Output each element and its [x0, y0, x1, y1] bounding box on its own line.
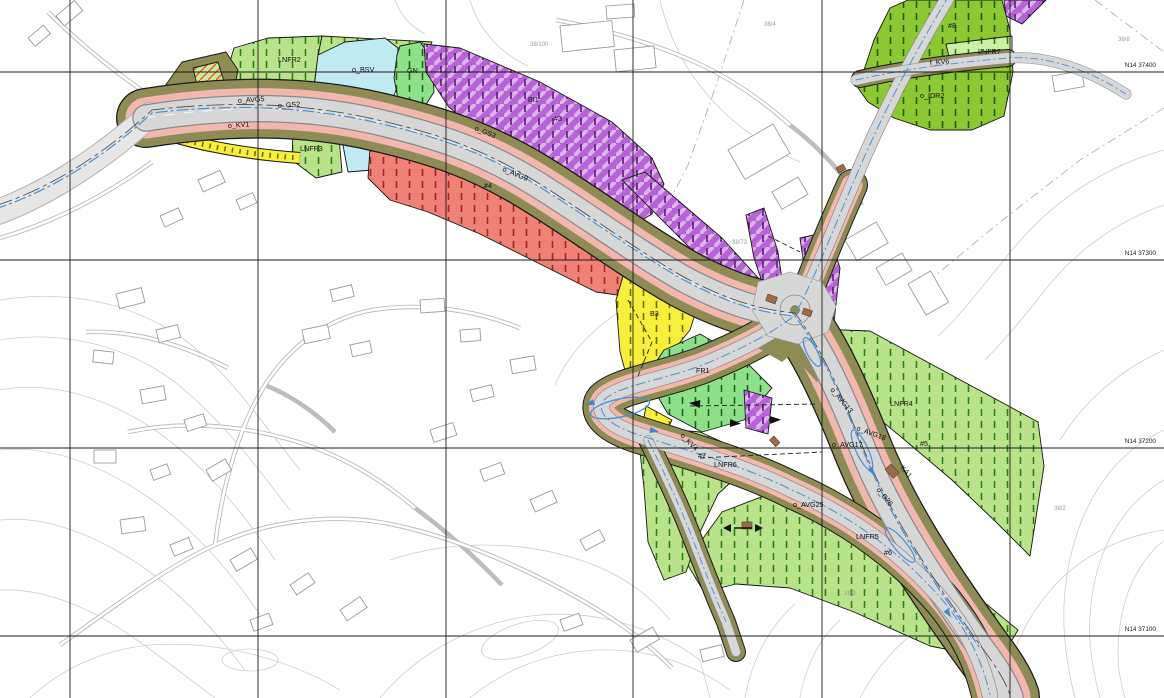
label-hash5: #5	[920, 439, 928, 448]
label-lnfr2: LNFR2	[278, 55, 301, 64]
label-p38-2: 38/2	[1054, 506, 1066, 512]
label-f-kv6: f_KV6	[930, 57, 950, 67]
label-p38-73: 38/73	[732, 240, 748, 246]
label-n14-37400: N14 37400	[1125, 62, 1157, 69]
label-lnfr3: LNFR3	[300, 144, 323, 153]
label-fr1: FR1	[696, 366, 710, 375]
label-hash4: #4	[484, 181, 492, 190]
label-hash6: #6	[884, 548, 892, 557]
label-lnfr4: LNFR4	[890, 399, 913, 408]
label-n14-37300: N14 37300	[1125, 250, 1157, 257]
label-lnfr7: LNFR7	[978, 47, 1001, 56]
zoning-map-canvas[interactable]: o_BSVLNFR2GNBI1#3o_GS3o_KV1o_GS2o_AVG5o_…	[0, 0, 1164, 698]
label-gn: GN	[407, 66, 418, 75]
label-o-idr2: o_IDR2	[920, 91, 944, 100]
grid-labels-group: N14 37400N14 37300N14 37200N14 37100	[1125, 62, 1157, 633]
label-o-avg17: o_AVG17	[832, 440, 863, 449]
label-o-avg25: o_AVG25	[793, 500, 824, 509]
label-bi1: BI1	[528, 95, 539, 104]
label-b3: B3	[650, 309, 659, 318]
label-p38-100: 38/100	[530, 42, 549, 48]
label-n14-37100: N14 37100	[1125, 626, 1157, 633]
label-hash7: #7	[698, 451, 706, 460]
zone-purple-strip-c	[744, 390, 772, 434]
label-o-kv1: o_KV1	[228, 120, 250, 130]
label-p38-4: 38/4	[764, 22, 776, 28]
label-hash8: #8	[948, 21, 956, 30]
label-o-bsv: o_BSV	[352, 65, 375, 74]
label-lnfr5: LNFR5	[856, 532, 879, 541]
map-viewport[interactable]: o_BSVLNFR2GNBI1#3o_GS3o_KV1o_GS2o_AVG5o_…	[0, 0, 1164, 698]
label-p38-3: 38/3	[844, 591, 856, 597]
label-o-avg5: o_AVG5	[238, 94, 265, 105]
label-hash3: #3	[554, 114, 562, 123]
label-p38-8: 38/8	[1118, 37, 1130, 43]
label-lnfr6: LNFR6	[714, 460, 737, 469]
label-n14-37200: N14 37200	[1125, 438, 1157, 445]
label-o-gs2: o_GS2	[278, 99, 301, 110]
